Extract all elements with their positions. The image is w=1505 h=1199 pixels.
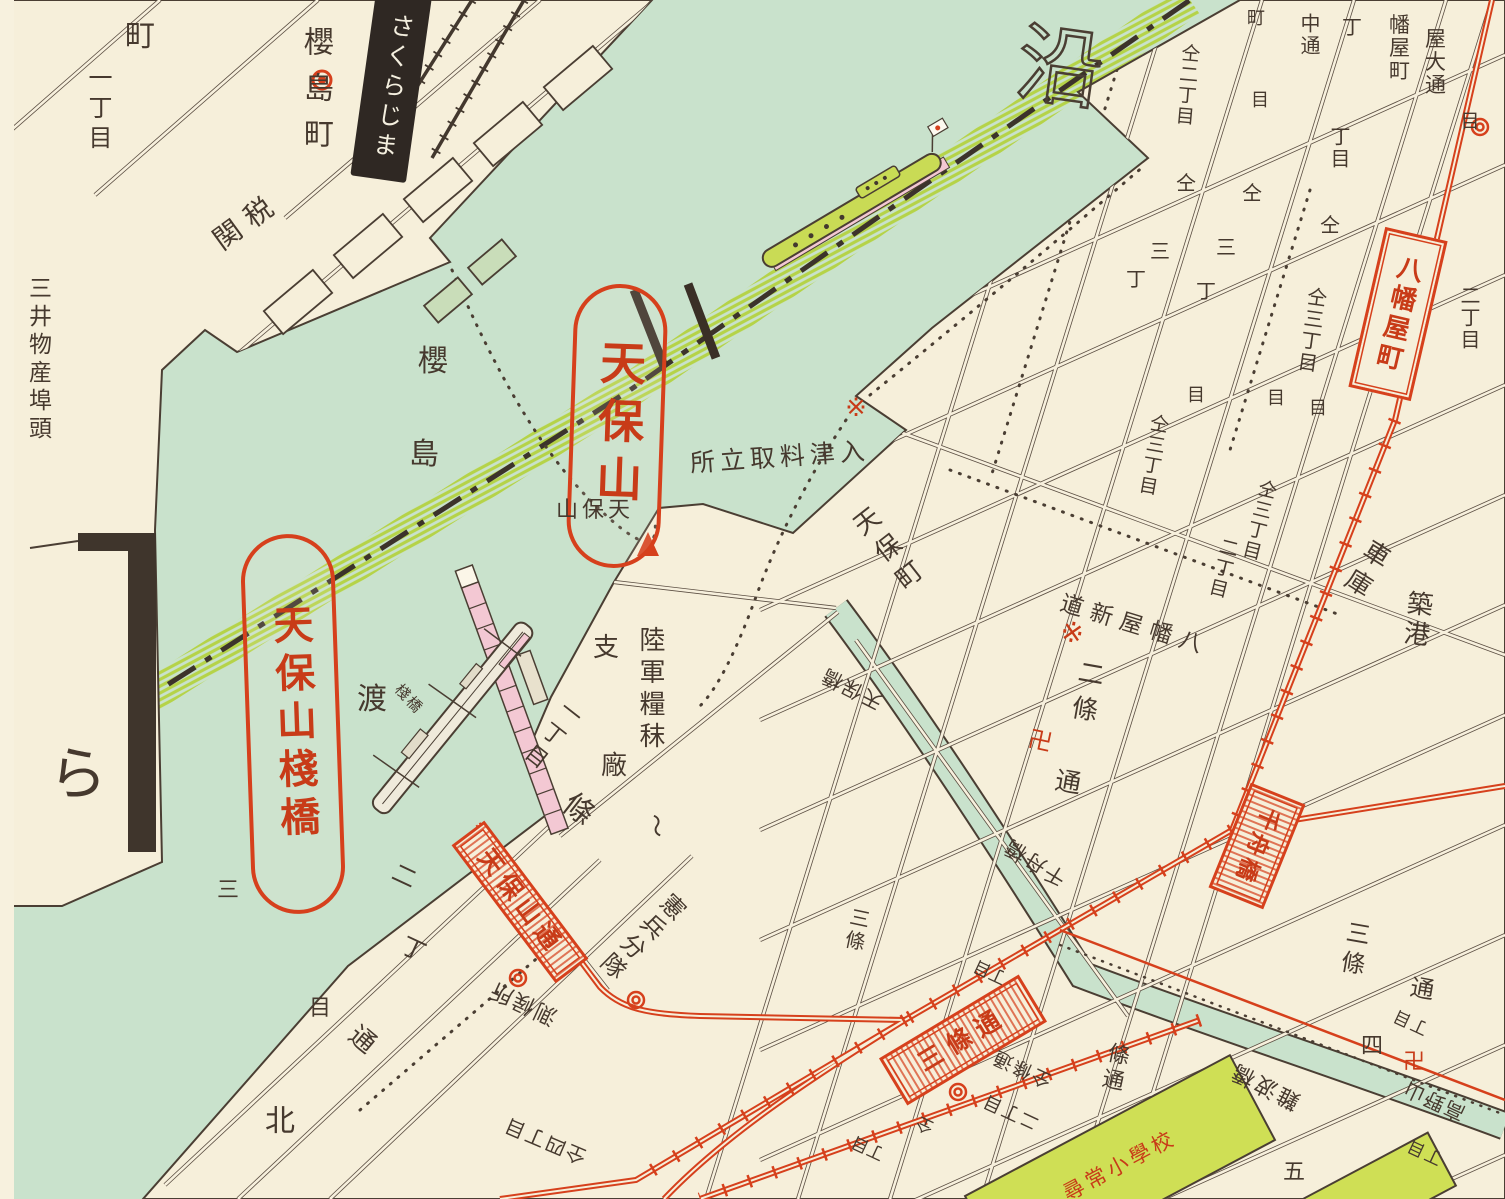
label-san: 三 [1150,242,1170,262]
label-ya-o-dori: 屋大通 [1424,28,1445,97]
label-me: 目 [1267,389,1285,407]
temple-manji-icon: 卍 [1403,1051,1425,1073]
map-margin [0,0,14,1199]
label-me: 目 [1187,386,1205,404]
label-me: 目 [1309,399,1327,417]
label-cho: 丁 [1126,270,1146,290]
label-army-provisions: 陸軍糧秣 [637,626,663,754]
label-jima: 島 [409,440,439,470]
label-chikko: 築港 [1400,589,1432,651]
label-san: 三 [1216,238,1236,258]
label-yon: 四 [1361,1035,1383,1057]
cartouche-tempozan-pier: 天保山棧橋 [239,532,346,915]
label-kita: 北 [265,1107,295,1137]
label-cho: 丁 [1196,282,1216,302]
label-machi: 町 [125,22,155,52]
cartouche-tempozan-pier-label: 天保山棧橋 [260,603,326,845]
cartouche-tempozan: 天保山 [565,282,669,569]
label-tempozan-rtl: 山保天 [556,499,634,521]
label-do: 仝 [1242,184,1262,204]
street-box-yahataya-label: 八幡屋町 [1366,251,1429,376]
label-mitsui-wharf: 三井物産埠頭 [27,276,50,444]
label-chome: 丁目 [1328,126,1348,170]
label-me: 目 [1251,91,1269,109]
map-canvas[interactable]: 天保山 天保山棧橋 さくらじま 八幡屋町 天保山通 三條通 千舟橋 尋常小學校 … [0,0,1505,1199]
temple-manji-icon: 卍 [1026,728,1054,756]
label-sho: 廠 [601,753,627,779]
station-sign-label: さくらじま [363,10,420,164]
label-cho: 丁 [1342,18,1362,38]
label-machi: 町 [1247,9,1265,27]
label-san: 三 [217,879,239,901]
landmark-star-icon: ※ [1058,618,1086,650]
label-watashi: 渡 [357,685,387,715]
label-1-chome: 一丁目 [85,65,109,155]
label-hataya-cho: 幡屋町 [1388,14,1409,83]
label-wave-mark: 〜 [641,812,669,840]
label-ra: ら [49,746,107,804]
label-do: 仝 [1320,216,1340,236]
label-me: 目 [1460,113,1479,132]
label-sakurajima-cho: 櫻島町 [300,26,330,164]
label-2-chome: 二丁目 [1458,285,1478,351]
label-go: 五 [1283,1161,1305,1183]
landmark-star-icon: ※ [845,395,867,421]
label-me: 目 [309,997,331,1019]
label-dori: 通 [1053,768,1083,798]
label-shi: 支 [593,635,619,661]
label-dori: 通 [1408,976,1436,1004]
label-naka-dori: 中通 [1298,13,1318,57]
cartouche-tempozan-label: 天保山 [581,338,653,514]
label-sakura: 櫻 [418,347,448,377]
label-do: 仝 [1176,174,1196,194]
label-river-big-char: 沿 [1011,19,1108,116]
map-artwork [0,0,1505,1199]
